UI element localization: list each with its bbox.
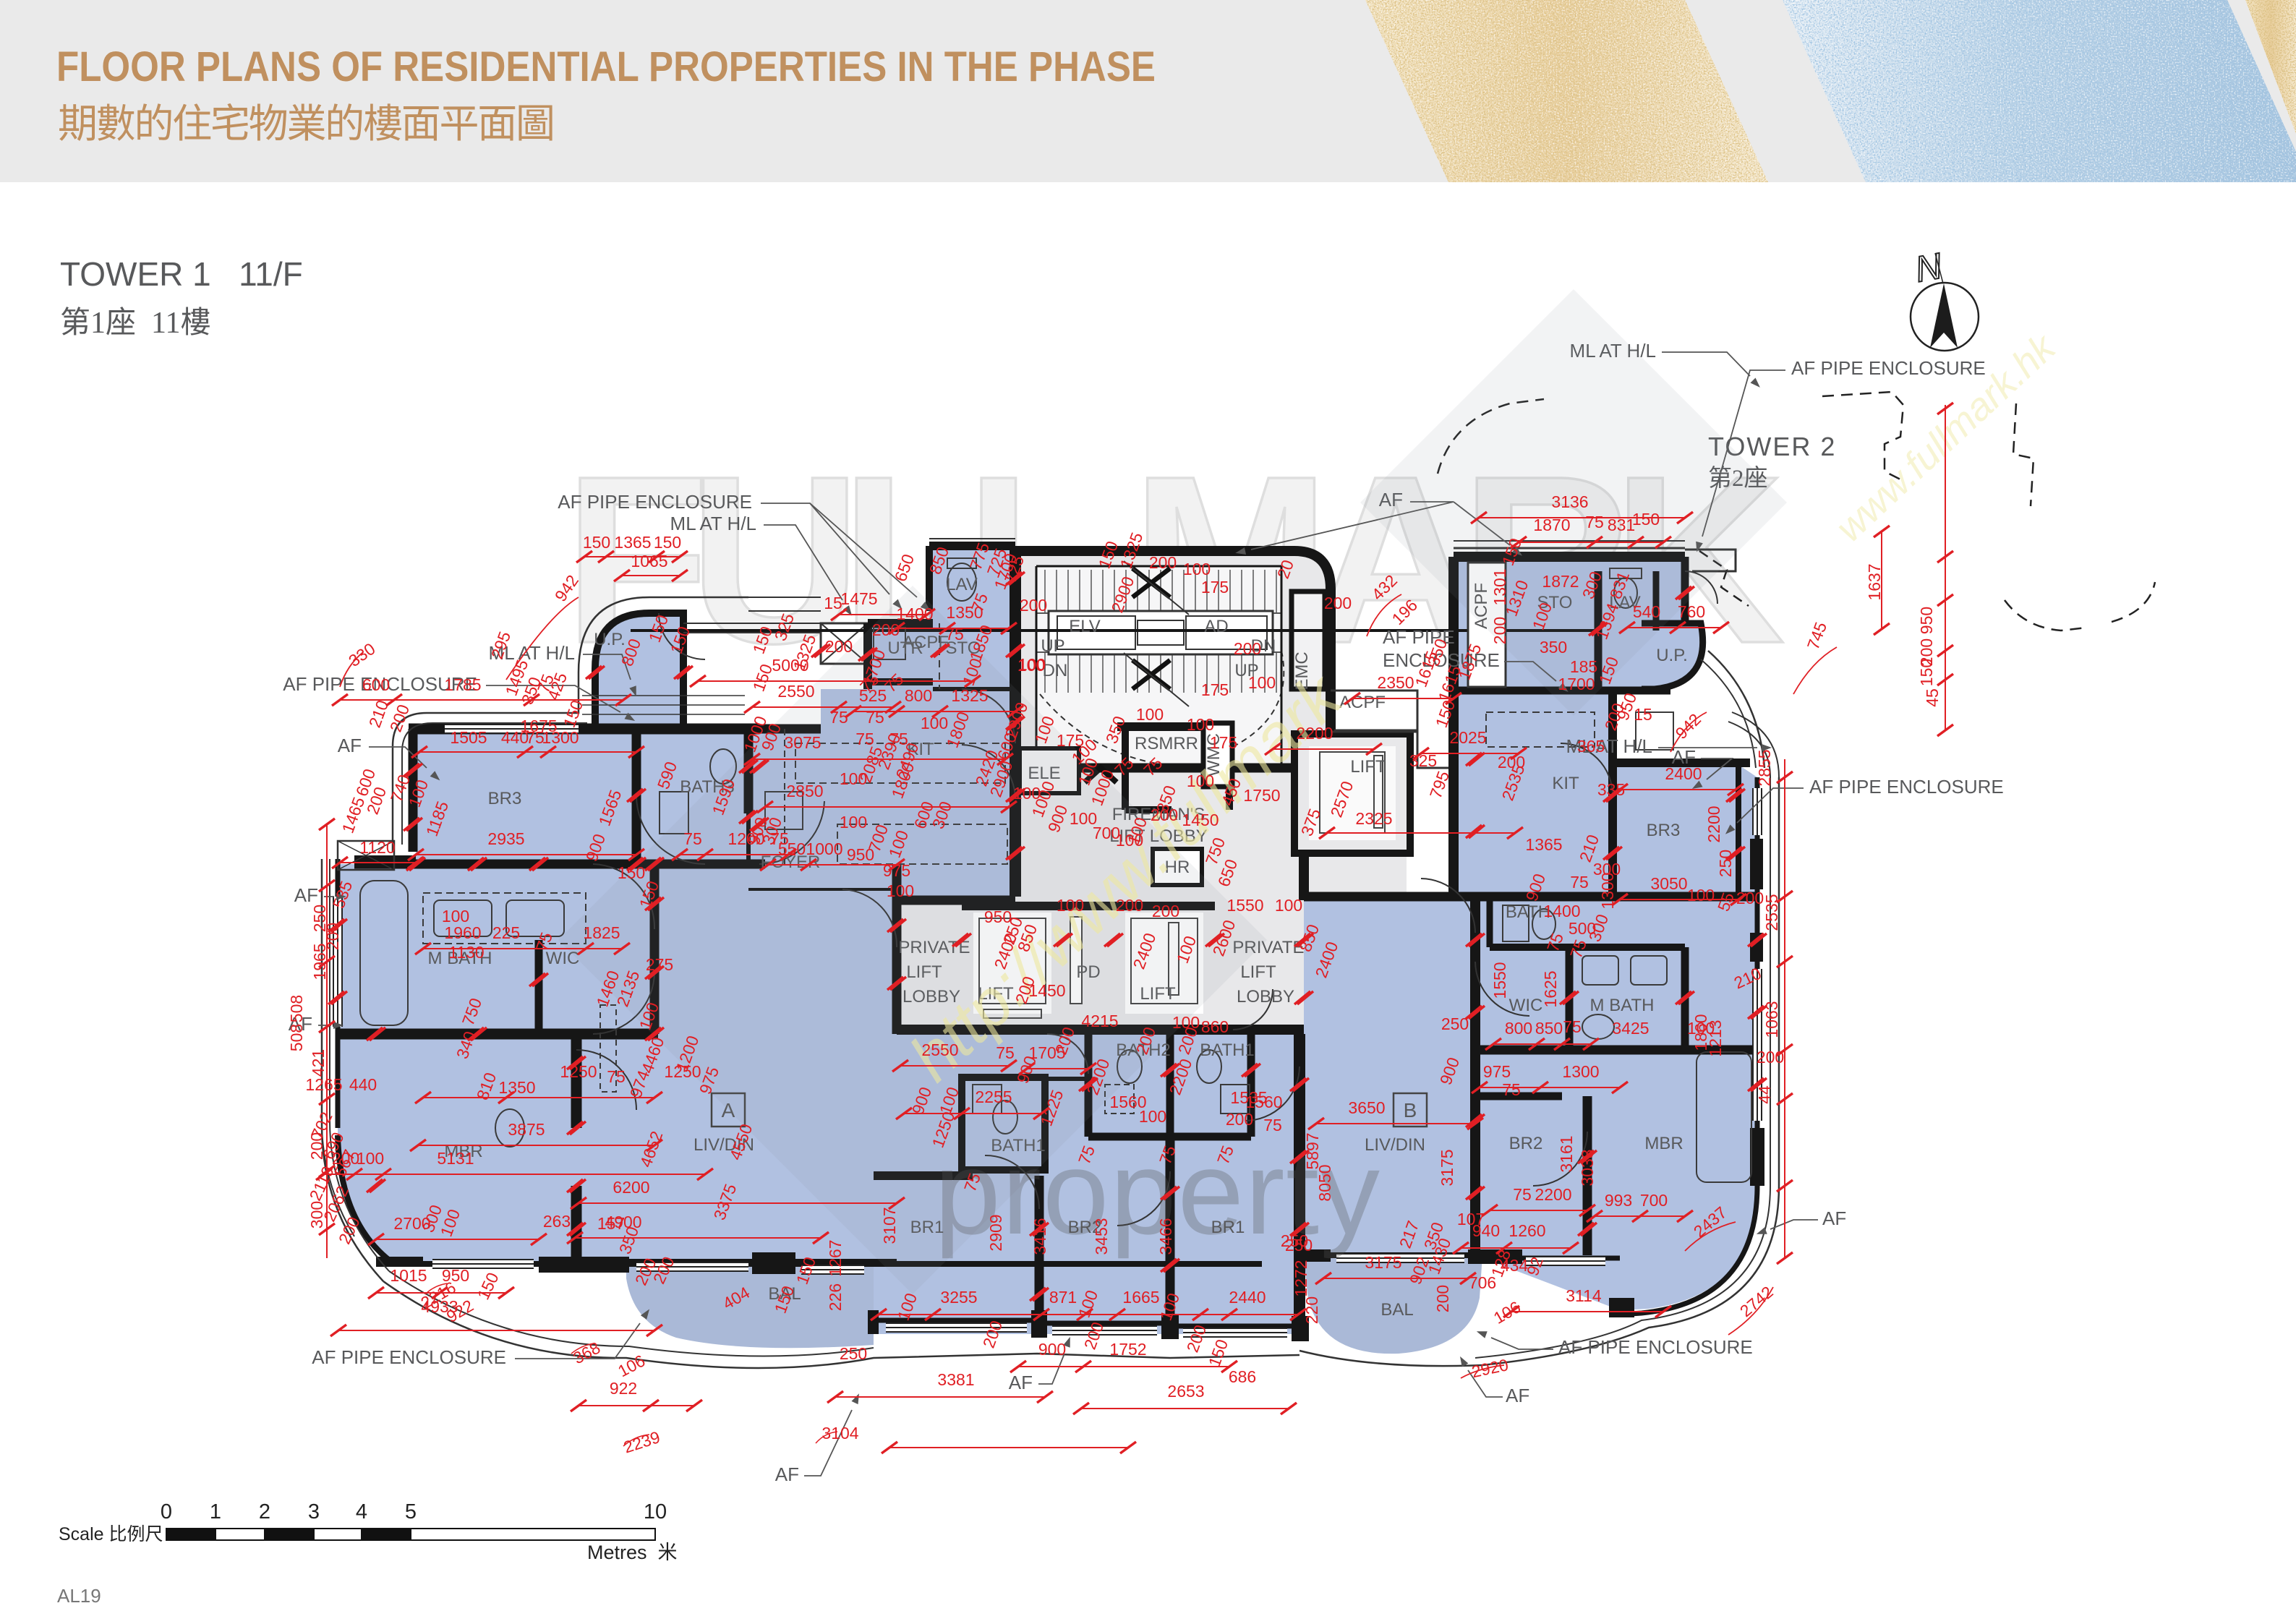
svg-text:1301: 1301 <box>1490 568 1509 605</box>
svg-text:226: 226 <box>826 1283 845 1311</box>
svg-text:300: 300 <box>1593 860 1621 879</box>
svg-text:250: 250 <box>1441 1014 1469 1033</box>
svg-text:106: 106 <box>1490 1297 1524 1328</box>
svg-text:100: 100 <box>357 1149 384 1168</box>
svg-text:185: 185 <box>1570 657 1597 676</box>
svg-text:975: 975 <box>883 861 910 880</box>
svg-text:FLOOR PLANS OF RESIDENTIAL PRO: FLOOR PLANS OF RESIDENTIAL PROPERTIES IN… <box>56 43 1156 90</box>
svg-text:3175: 3175 <box>1438 1149 1456 1186</box>
svg-text:2653: 2653 <box>1167 1382 1204 1401</box>
svg-text:AL19: AL19 <box>57 1585 101 1607</box>
svg-text:75: 75 <box>607 1067 626 1086</box>
svg-text:WIC: WIC <box>1509 996 1543 1015</box>
svg-text:2550: 2550 <box>777 682 814 701</box>
svg-text:AF: AF <box>1009 1372 1033 1393</box>
svg-text:150: 150 <box>654 533 681 552</box>
svg-text:75: 75 <box>945 625 964 644</box>
svg-text:3875: 3875 <box>508 1120 545 1139</box>
svg-text:100: 100 <box>840 813 867 832</box>
svg-text:508: 508 <box>287 1024 306 1051</box>
svg-text:1350: 1350 <box>498 1078 535 1097</box>
svg-text:1365: 1365 <box>1525 835 1562 854</box>
svg-text:1535: 1535 <box>1230 1088 1267 1107</box>
svg-text:107: 107 <box>1457 1210 1485 1228</box>
svg-text:AF: AF <box>294 884 318 906</box>
svg-text:2850: 2850 <box>786 782 823 800</box>
svg-text:8050: 8050 <box>1315 1164 1334 1201</box>
svg-text:15: 15 <box>824 594 842 612</box>
svg-text:BR2: BR2 <box>1509 1134 1543 1153</box>
svg-text:75: 75 <box>866 708 884 727</box>
svg-text:800: 800 <box>1505 1019 1532 1038</box>
svg-text:1065: 1065 <box>631 552 667 570</box>
svg-text:TOWER 1 11/F: TOWER 1 11/F <box>60 255 303 293</box>
svg-text:2200: 2200 <box>1704 805 1723 842</box>
svg-text:UP: UP <box>1041 636 1064 656</box>
svg-text:AF PIPE ENCLOSURE: AF PIPE ENCLOSURE <box>312 1346 506 1368</box>
svg-text:45: 45 <box>1923 688 1942 707</box>
svg-text:200: 200 <box>1226 1110 1253 1129</box>
svg-text:975: 975 <box>1483 1062 1511 1081</box>
svg-text:175: 175 <box>1201 680 1229 699</box>
svg-text:75: 75 <box>1563 1017 1582 1036</box>
svg-text:2535: 2535 <box>1762 894 1781 931</box>
svg-text:831: 831 <box>1608 516 1635 534</box>
svg-text:871: 871 <box>1049 1288 1077 1307</box>
svg-text:3075: 3075 <box>784 733 821 752</box>
svg-text:75: 75 <box>683 829 702 848</box>
svg-text:5: 5 <box>405 1500 417 1523</box>
svg-text:0: 0 <box>161 1500 172 1523</box>
svg-text:106: 106 <box>615 1351 648 1380</box>
svg-text:3050: 3050 <box>1650 874 1687 893</box>
svg-text:6200: 6200 <box>613 1178 649 1197</box>
svg-text:ELV: ELV <box>1069 617 1101 636</box>
svg-text:BR3: BR3 <box>1647 821 1681 840</box>
svg-text:600: 600 <box>362 675 390 694</box>
svg-text:3175: 3175 <box>1365 1253 1401 1272</box>
svg-text:1475: 1475 <box>840 589 877 608</box>
svg-text:Scale 比例尺 :: Scale 比例尺 : <box>59 1524 173 1544</box>
svg-text:B: B <box>1404 1099 1417 1121</box>
svg-text:100: 100 <box>1275 896 1302 915</box>
svg-text:AF PIPE ENCLOSURE: AF PIPE ENCLOSURE <box>558 491 752 513</box>
svg-text:1870: 1870 <box>1533 516 1570 534</box>
svg-text:800: 800 <box>905 686 932 705</box>
svg-text:2255: 2255 <box>975 1087 1012 1106</box>
svg-text:LOBBY: LOBBY <box>1237 987 1294 1007</box>
svg-text:100: 100 <box>921 714 948 732</box>
svg-text:508: 508 <box>287 995 306 1022</box>
svg-text:100: 100 <box>1248 673 1276 692</box>
svg-text:1960: 1960 <box>444 923 481 942</box>
svg-text:1752: 1752 <box>1109 1340 1146 1359</box>
svg-text:10: 10 <box>644 1500 667 1523</box>
svg-text:100: 100 <box>1116 831 1143 850</box>
svg-text:706: 706 <box>1469 1273 1496 1292</box>
svg-text:75: 75 <box>1263 1116 1282 1134</box>
svg-text:BR3: BR3 <box>488 789 522 808</box>
svg-text:550: 550 <box>778 839 806 858</box>
svg-text:1130: 1130 <box>448 943 484 962</box>
svg-text:44: 44 <box>1755 1085 1774 1104</box>
svg-text:75: 75 <box>1570 873 1589 892</box>
svg-text:3104: 3104 <box>821 1424 858 1443</box>
svg-text:2920: 2920 <box>1470 1355 1510 1381</box>
svg-text:2025: 2025 <box>1449 728 1486 747</box>
svg-text:4: 4 <box>356 1500 367 1523</box>
svg-text:1000: 1000 <box>806 839 842 858</box>
svg-text:U.P.: U.P. <box>594 630 626 649</box>
svg-text:AF: AF <box>1506 1385 1529 1406</box>
svg-text:AF: AF <box>1822 1208 1846 1229</box>
svg-text:150: 150 <box>1917 659 1936 686</box>
svg-text:AF PIPE ENCLOSURE: AF PIPE ENCLOSURE <box>1558 1336 1753 1358</box>
svg-text:175: 175 <box>1210 733 1237 752</box>
svg-text:2200: 2200 <box>1535 1185 1571 1204</box>
svg-text:75: 75 <box>1513 1185 1532 1204</box>
svg-text:3107: 3107 <box>880 1207 899 1244</box>
svg-text:3381: 3381 <box>937 1370 974 1389</box>
svg-text:1825: 1825 <box>583 923 620 942</box>
svg-text:900: 900 <box>1038 1340 1066 1359</box>
svg-text:1265: 1265 <box>305 1075 342 1094</box>
svg-text:100: 100 <box>1139 1107 1166 1126</box>
svg-text:1300: 1300 <box>1562 1062 1599 1081</box>
svg-text:1015: 1015 <box>390 1266 427 1285</box>
svg-text:100: 100 <box>887 881 914 900</box>
svg-text:1550: 1550 <box>1226 896 1263 915</box>
svg-text:75: 75 <box>996 1043 1015 1062</box>
svg-text:1700: 1700 <box>1558 675 1595 693</box>
svg-text:200: 200 <box>1149 553 1177 572</box>
svg-text:2325: 2325 <box>1355 809 1392 828</box>
svg-text:ACPF: ACPF <box>1472 583 1491 629</box>
svg-text:150: 150 <box>1205 1337 1232 1369</box>
svg-text:1450: 1450 <box>1028 981 1065 1000</box>
svg-text:1665: 1665 <box>1122 1288 1159 1307</box>
svg-text:1325: 1325 <box>951 686 988 705</box>
svg-text:200: 200 <box>1152 902 1179 920</box>
svg-text:434: 434 <box>1501 1256 1529 1275</box>
svg-text:2909: 2909 <box>986 1214 1005 1251</box>
svg-text:1750: 1750 <box>1243 786 1280 805</box>
svg-text:263: 263 <box>543 1212 571 1231</box>
svg-text:AF PIPE ENCLOSURE: AF PIPE ENCLOSURE <box>1791 357 1986 379</box>
svg-text:75: 75 <box>1502 1080 1521 1099</box>
svg-text:2400: 2400 <box>1665 764 1702 783</box>
svg-text:AF PIPE ENCLOSURE: AF PIPE ENCLOSURE <box>1809 776 2004 798</box>
svg-text:BAL: BAL <box>1380 1300 1413 1320</box>
svg-text:922: 922 <box>610 1379 637 1398</box>
svg-text:993: 993 <box>1605 1191 1632 1210</box>
svg-text:3453: 3453 <box>1092 1218 1111 1255</box>
svg-text:5131: 5131 <box>437 1149 474 1168</box>
svg-text:M BATH: M BATH <box>1590 996 1655 1015</box>
svg-text:1465: 1465 <box>338 795 369 836</box>
svg-text:1: 1 <box>210 1500 221 1523</box>
svg-text:3161: 3161 <box>1557 1135 1576 1172</box>
svg-text:100: 100 <box>1187 715 1214 734</box>
svg-text:1272: 1272 <box>1292 1260 1310 1296</box>
svg-text:200: 200 <box>872 620 900 639</box>
svg-text:1260: 1260 <box>1508 1221 1545 1240</box>
svg-text:365: 365 <box>1577 737 1605 756</box>
svg-text:2855: 2855 <box>1755 749 1774 786</box>
svg-text:440: 440 <box>349 1075 377 1094</box>
svg-text:1872: 1872 <box>1542 572 1579 591</box>
svg-text:200: 200 <box>1234 639 1261 658</box>
svg-text:760: 760 <box>1678 602 1705 621</box>
svg-text:2: 2 <box>259 1500 270 1523</box>
svg-text:1450: 1450 <box>1182 811 1219 829</box>
svg-text:950: 950 <box>442 1266 469 1285</box>
svg-text:150: 150 <box>1632 510 1660 529</box>
svg-text:U.P.: U.P. <box>1656 646 1688 665</box>
svg-text:3136: 3136 <box>1551 492 1588 511</box>
svg-text:KIT: KIT <box>1552 774 1579 793</box>
svg-text:3255: 3255 <box>940 1288 977 1307</box>
svg-text:950: 950 <box>1917 607 1936 634</box>
svg-text:4933: 4933 <box>421 1297 458 1316</box>
svg-text:250: 250 <box>840 1344 867 1363</box>
svg-text:AF: AF <box>338 735 362 756</box>
svg-text:3425: 3425 <box>1612 1019 1649 1038</box>
svg-text:745: 745 <box>1804 620 1831 652</box>
svg-text:AD: AD <box>1204 617 1228 636</box>
svg-text:2550: 2550 <box>921 1040 958 1059</box>
svg-text:850: 850 <box>1535 1019 1563 1038</box>
svg-text:200: 200 <box>1020 596 1047 615</box>
svg-text:1400: 1400 <box>1543 902 1580 920</box>
svg-text:DN: DN <box>1043 661 1068 680</box>
svg-text:第1座 11樓: 第1座 11樓 <box>60 306 210 340</box>
svg-text:100: 100 <box>1057 896 1084 915</box>
svg-text:2440: 2440 <box>1229 1288 1266 1307</box>
svg-text:200: 200 <box>1736 889 1764 907</box>
svg-text:200: 200 <box>1490 617 1509 644</box>
svg-text:1365: 1365 <box>614 533 651 552</box>
svg-text:2200: 2200 <box>1296 724 1333 743</box>
svg-text:2350: 2350 <box>1377 673 1414 692</box>
svg-text:75: 75 <box>1585 513 1604 531</box>
svg-text:150: 150 <box>583 533 610 552</box>
svg-text:157: 157 <box>597 1214 625 1233</box>
svg-text:1120: 1120 <box>359 838 395 857</box>
svg-text:1675: 1675 <box>520 717 557 735</box>
svg-text:4215: 4215 <box>1081 1012 1118 1030</box>
svg-text:1785: 1785 <box>444 675 481 694</box>
svg-text:225: 225 <box>492 923 520 942</box>
svg-text:3114: 3114 <box>1566 1286 1602 1305</box>
svg-text:AF: AF <box>775 1463 799 1485</box>
svg-text:200: 200 <box>1433 1285 1452 1312</box>
svg-text:860: 860 <box>1201 1017 1229 1036</box>
svg-text:BATH1: BATH1 <box>1200 1040 1255 1060</box>
svg-text:LIFT: LIFT <box>1350 757 1386 777</box>
svg-text:3650: 3650 <box>1348 1098 1385 1117</box>
svg-text:2935: 2935 <box>487 829 524 848</box>
svg-text:75: 75 <box>829 708 848 727</box>
svg-text:期數的住宅物業的樓面平面圖: 期數的住宅物業的樓面平面圖 <box>58 102 555 146</box>
svg-text:1250: 1250 <box>560 1062 597 1081</box>
svg-text:700: 700 <box>1640 1191 1668 1210</box>
svg-text:200: 200 <box>1116 896 1143 915</box>
svg-text:100: 100 <box>840 769 867 788</box>
svg-text:3: 3 <box>308 1500 320 1523</box>
svg-text:1213: 1213 <box>1706 1020 1725 1056</box>
svg-text:1505: 1505 <box>450 728 487 747</box>
svg-text:1267: 1267 <box>826 1239 845 1276</box>
svg-text:200: 200 <box>1757 1048 1784 1067</box>
svg-text:100: 100 <box>1187 772 1214 790</box>
svg-text:100: 100 <box>1183 560 1211 578</box>
svg-text:Metres 米: Metres 米 <box>587 1542 678 1563</box>
svg-text:N: N <box>1912 245 1945 290</box>
svg-text:ML AT H/L: ML AT H/L <box>670 513 756 534</box>
svg-text:LIFT: LIFT <box>1240 962 1276 982</box>
svg-text:MBR: MBR <box>1644 1134 1683 1153</box>
svg-text:1550: 1550 <box>1490 962 1509 999</box>
svg-text:175: 175 <box>1201 578 1229 597</box>
svg-text:100: 100 <box>1017 656 1045 675</box>
svg-text:540: 540 <box>1633 602 1660 621</box>
svg-text:15: 15 <box>1634 705 1652 724</box>
svg-text:200: 200 <box>1324 594 1352 612</box>
svg-text:3466: 3466 <box>1156 1218 1175 1255</box>
svg-text:RSMRR: RSMRR <box>1135 734 1198 753</box>
svg-text:686: 686 <box>1229 1367 1256 1386</box>
svg-text:2239: 2239 <box>621 1427 662 1457</box>
svg-text:421: 421 <box>309 1049 328 1077</box>
svg-text:200: 200 <box>332 1149 359 1168</box>
svg-text:100: 100 <box>1136 705 1164 724</box>
svg-text:350: 350 <box>1540 638 1567 657</box>
svg-text:1625: 1625 <box>1541 970 1560 1007</box>
svg-text:100: 100 <box>1687 886 1715 905</box>
